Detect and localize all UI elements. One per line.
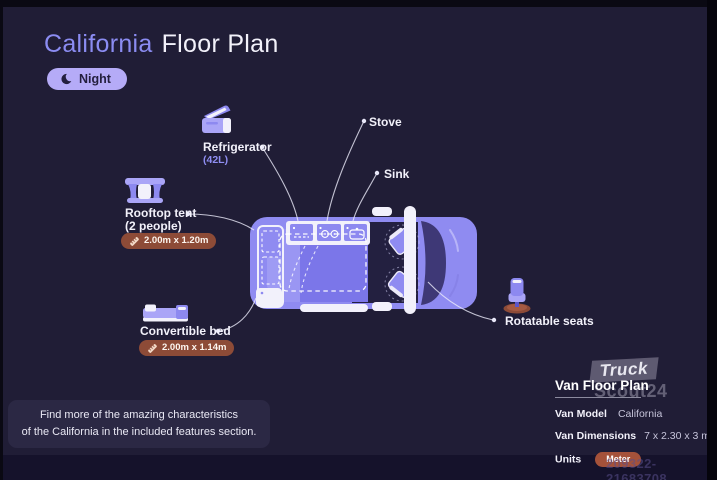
van-model-value: California <box>618 408 662 420</box>
leader-stove <box>327 121 364 221</box>
van-tent-footprint-outline <box>280 234 366 291</box>
van-dimensions-value: 7 x 2.30 x 3 m <box>644 430 710 442</box>
info-box-line1: Find more of the amazing characteristics <box>40 407 238 424</box>
units-label: Units <box>555 453 581 465</box>
stove-label: Stove <box>369 115 402 129</box>
rooftop-tent-dimensions: 2.00m x 1.20m <box>144 236 208 246</box>
refrigerator-note: (42L) <box>203 154 228 166</box>
convertible-bed-label: Convertible bed <box>140 324 231 338</box>
ruler-icon <box>147 343 158 354</box>
van-bed-floor <box>300 245 368 302</box>
info-box-line2: of the California in the included featur… <box>22 424 257 441</box>
van-dimensions-row: Van Dimensions7 x 2.30 x 3 m <box>555 430 713 442</box>
rotatable-seats-icon <box>502 277 532 314</box>
convertible-bed-dimensions: 2.00m x 1.14m <box>162 343 226 353</box>
van-sink-module <box>344 224 367 241</box>
ruler-icon <box>129 236 140 247</box>
leader-rotatable-seats <box>428 282 493 320</box>
leader-rooftop-tent <box>188 214 254 230</box>
van-refrigerator-module <box>290 224 313 241</box>
van-model-row: Van ModelCalifornia <box>555 408 713 420</box>
van-door-rail <box>300 304 368 312</box>
floor-plan-canvas: Truck Scout24 CaliforniaFloor Plan Night <box>0 0 717 480</box>
van-rear-bed <box>256 226 368 307</box>
page-title: CaliforniaFloor Plan <box>44 30 279 59</box>
frame-border-right <box>707 0 717 480</box>
panel-title: Van Floor Plan <box>555 378 713 393</box>
rooftop-tent-note: (2 people) <box>125 219 182 233</box>
van-dimensions-label: Van Dimensions <box>555 430 636 442</box>
van-windshield <box>421 221 446 305</box>
frame-border-top <box>0 0 717 7</box>
frame-border-left <box>0 0 3 480</box>
convertible-bed-dimensions-badge: 2.00m x 1.14m <box>139 340 234 356</box>
van-poptop-bar <box>404 206 416 314</box>
leader-refrigerator <box>262 147 298 221</box>
moon-icon <box>60 73 72 85</box>
leader-sink <box>353 173 377 221</box>
van-model-label: Van Model <box>555 408 607 420</box>
van-seat-rear <box>386 270 416 300</box>
van-details-panel: Van Floor Plan Van ModelCalifornia Van D… <box>555 378 713 467</box>
rooftop-tent-icon <box>124 176 166 203</box>
van-cabin-area <box>352 222 418 303</box>
van-rotatable-seats <box>385 225 419 301</box>
van-seat-front <box>386 225 417 255</box>
info-box: Find more of the amazing characteristics… <box>8 400 270 448</box>
refrigerator-icon <box>198 103 235 136</box>
van-body <box>250 217 477 309</box>
listing-id-watermark: 209322-21683708 <box>606 456 717 480</box>
rooftop-tent-dimensions-badge: 2.00m x 1.20m <box>121 233 216 249</box>
page-title-suffix: Floor Plan <box>162 30 279 58</box>
rotatable-seats-label: Rotatable seats <box>505 314 594 328</box>
page-title-model: California <box>44 30 153 58</box>
van-stove-module <box>317 224 341 241</box>
night-mode-label: Night <box>79 72 111 86</box>
night-mode-toggle[interactable]: Night <box>47 68 127 90</box>
sink-label: Sink <box>384 167 409 181</box>
refrigerator-label: Refrigerator <box>203 140 272 154</box>
rooftop-tent-label: Rooftop tent <box>125 206 196 220</box>
van-kitchen-unit <box>286 221 370 245</box>
convertible-bed-icon <box>142 303 190 323</box>
panel-underline <box>555 397 641 398</box>
